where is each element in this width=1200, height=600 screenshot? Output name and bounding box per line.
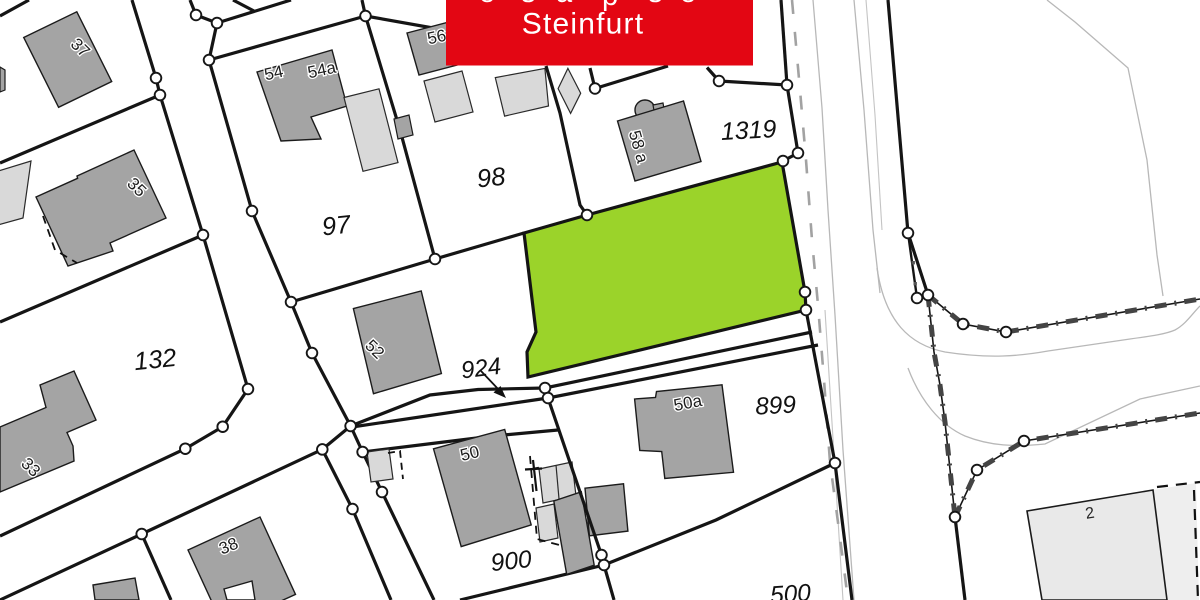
svg-text:s: s xyxy=(648,0,663,9)
svg-text:97: 97 xyxy=(321,211,353,242)
svg-text:56: 56 xyxy=(426,26,448,49)
svg-text:500: 500 xyxy=(769,580,812,600)
svg-text:98: 98 xyxy=(476,163,508,194)
svg-text:1319: 1319 xyxy=(720,115,777,146)
svg-text:899: 899 xyxy=(754,391,797,420)
svg-text:54: 54 xyxy=(263,62,285,85)
svg-text:e: e xyxy=(479,0,495,9)
svg-text:e: e xyxy=(680,0,696,9)
svg-text:Steinfurt: Steinfurt xyxy=(522,8,645,41)
svg-text:900: 900 xyxy=(489,546,533,577)
svg-text:132: 132 xyxy=(133,344,178,376)
svg-text:924: 924 xyxy=(460,353,503,385)
